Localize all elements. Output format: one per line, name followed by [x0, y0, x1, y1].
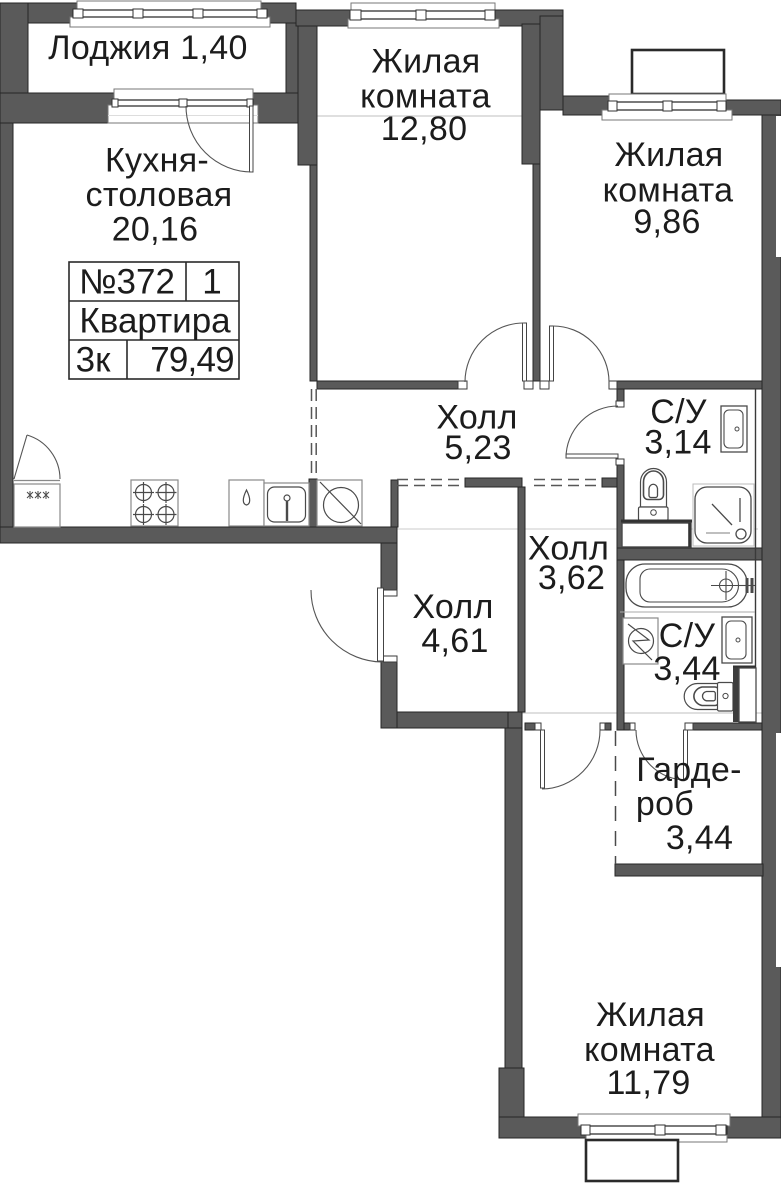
svg-text:9,86: 9,86 [633, 203, 700, 241]
svg-text:Жилая: Жилая [371, 43, 480, 81]
svg-text:20,16: 20,16 [112, 211, 199, 249]
svg-text:Лоджия 1,40: Лоджия 1,40 [48, 29, 247, 67]
svg-text:роб: роб [636, 785, 694, 823]
svg-text:4,61: 4,61 [421, 622, 488, 660]
svg-text:Гарде-: Гарде- [636, 751, 741, 789]
svg-text:Жилая: Жилая [614, 136, 723, 174]
svg-text:Жилая: Жилая [596, 996, 705, 1034]
svg-text:Квартира: Квартира [79, 302, 231, 341]
svg-text:3к: 3к [76, 341, 111, 380]
svg-text:3,44: 3,44 [653, 650, 720, 688]
svg-text:3,62: 3,62 [538, 559, 605, 597]
svg-text:3,14: 3,14 [644, 424, 711, 462]
svg-text:3,44: 3,44 [666, 819, 733, 857]
svg-text:5,23: 5,23 [444, 429, 511, 467]
svg-text:1: 1 [202, 263, 221, 302]
svg-text:столовая: столовая [86, 176, 233, 214]
svg-text:79,49: 79,49 [150, 341, 234, 380]
svg-text:Холл: Холл [412, 588, 493, 626]
svg-text:№372: №372 [79, 263, 175, 302]
svg-text:11,79: 11,79 [606, 1064, 690, 1102]
svg-text:Кухня-: Кухня- [105, 142, 209, 180]
svg-text:12,80: 12,80 [381, 110, 468, 148]
